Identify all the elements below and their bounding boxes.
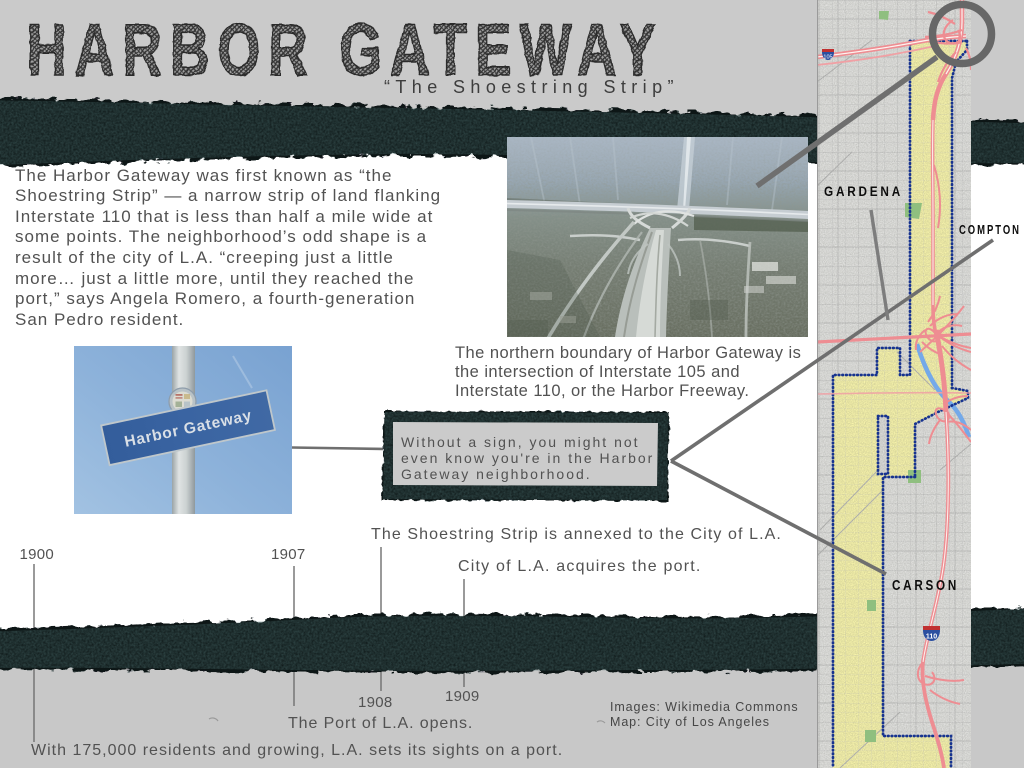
svg-text:110: 110 [926, 634, 937, 641]
svg-text:105: 105 [823, 55, 832, 61]
svg-text:CARSON: CARSON [892, 578, 959, 594]
svg-text:GARDENA: GARDENA [824, 184, 903, 199]
svg-text:COMPTON: COMPTON [959, 223, 1021, 237]
